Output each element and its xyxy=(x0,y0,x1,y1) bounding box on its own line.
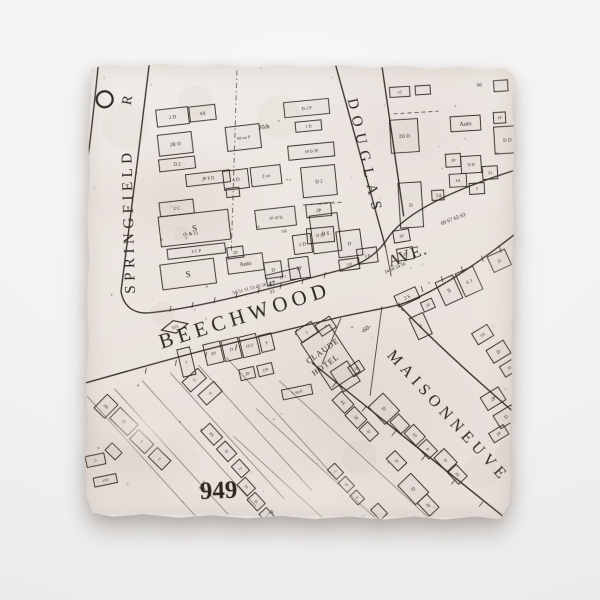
building-outline xyxy=(371,503,388,520)
building: 1 xyxy=(177,347,196,377)
map-label-dim-60: -60- xyxy=(360,323,373,335)
lot-tick xyxy=(362,407,366,412)
ink-speckle xyxy=(111,294,113,296)
ink-speckle xyxy=(202,480,204,482)
ink-speckle xyxy=(329,488,330,489)
building-label: 1 D xyxy=(299,242,307,248)
ink-speckle xyxy=(440,450,442,452)
ink-speckle xyxy=(365,405,367,407)
ink-speckle xyxy=(287,90,288,91)
stain-blotch xyxy=(150,301,174,325)
ink-speckle xyxy=(335,381,337,383)
building: D xyxy=(398,182,424,228)
building: D xyxy=(216,441,236,462)
building: P xyxy=(418,439,438,459)
ink-speckle xyxy=(350,177,352,179)
stain-blotch xyxy=(342,440,377,475)
building: 5 xyxy=(85,453,106,468)
ink-speckle xyxy=(457,148,458,149)
building: S xyxy=(160,258,217,290)
ink-speckle xyxy=(209,379,210,380)
ink-speckle xyxy=(421,263,423,265)
ink-speckle xyxy=(197,516,198,517)
building: 21P xyxy=(257,363,274,377)
ink-speckle xyxy=(320,203,323,206)
building: D 2 xyxy=(159,156,196,172)
ink-speckle xyxy=(322,339,323,340)
map-label-stray-5a-west: 5A xyxy=(281,228,288,234)
building-label: 2 on xyxy=(262,173,271,179)
ink-speckle xyxy=(179,421,181,423)
ink-speckle xyxy=(398,302,400,304)
building: D xyxy=(499,359,517,378)
ink-speckle xyxy=(194,455,196,457)
ink-speckle xyxy=(415,315,416,316)
ink-speckle xyxy=(297,158,298,159)
building xyxy=(371,503,388,520)
building xyxy=(493,80,508,92)
building: D xyxy=(247,492,265,510)
ink-speckle xyxy=(387,462,389,464)
building-label: D 2 P xyxy=(301,105,312,111)
building: 1P xyxy=(445,153,461,167)
ink-speckle xyxy=(489,440,490,441)
ink-speckle xyxy=(286,179,288,181)
building xyxy=(105,443,122,460)
building: 2D D xyxy=(389,119,419,154)
building-label: 2 D xyxy=(169,115,177,121)
building-label: x2 xyxy=(398,89,402,94)
ink-speckle xyxy=(439,146,440,147)
building-label: D 2 xyxy=(173,162,181,168)
building: 4A xyxy=(201,423,223,445)
building: D D xyxy=(461,155,482,173)
boundary-dashed-line xyxy=(231,70,237,250)
ink-speckle xyxy=(512,321,514,323)
building-outline xyxy=(493,80,508,92)
building-outline xyxy=(415,85,431,95)
building: 2P xyxy=(227,246,244,259)
building: 2 P xyxy=(356,247,378,264)
building-label: 21P xyxy=(346,262,352,267)
ink-speckle xyxy=(274,297,276,299)
ink-speckle xyxy=(246,296,247,297)
ink-speckle xyxy=(401,308,404,311)
ink-speckle xyxy=(128,446,129,447)
lot-line xyxy=(255,409,406,523)
ink-speckle xyxy=(511,270,512,271)
building: D xyxy=(486,340,511,363)
building: 4A on P xyxy=(225,124,261,152)
ink-speckle xyxy=(489,269,490,270)
building: 1P xyxy=(493,112,506,124)
map-label-block-number-949: 949 xyxy=(199,477,238,506)
ink-speckle xyxy=(339,229,341,231)
building-outline xyxy=(105,443,122,460)
building-label: 1 D xyxy=(305,123,312,129)
building: 1 on P xyxy=(281,384,312,400)
ink-speckle xyxy=(136,172,138,174)
ink-speckle xyxy=(371,337,372,338)
ink-speckle xyxy=(373,340,374,341)
ink-speckle xyxy=(259,132,260,133)
lot-tick xyxy=(392,431,396,436)
ink-speckle xyxy=(391,204,392,205)
ink-speckle xyxy=(504,388,506,390)
building: 1P 1P D xyxy=(255,206,297,229)
building: 1P xyxy=(420,298,435,312)
sanborn-map: 2 D4A2R DD 22P F D2 CSF C PS4A on P4 D2 … xyxy=(83,61,517,523)
ink-speckle xyxy=(289,179,291,181)
ink-speckle xyxy=(200,429,203,432)
building: D 2 xyxy=(301,165,338,198)
ink-speckle xyxy=(351,326,353,328)
photo-background: 2 D4A2R DD 22P F D2 CSF C PS4A on P4 D2 … xyxy=(0,0,600,600)
lot-tick xyxy=(302,278,303,284)
ink-speckle xyxy=(361,521,362,522)
building: 2S xyxy=(237,477,255,495)
building: 2P xyxy=(239,366,256,380)
ink-speckle xyxy=(268,125,270,127)
building: x2 xyxy=(389,86,410,97)
ink-speckle xyxy=(116,125,117,126)
building: 1P D 2P xyxy=(288,142,335,160)
ink-speckle xyxy=(182,501,184,503)
ink-speckle xyxy=(351,423,352,424)
building: 4 xyxy=(198,381,222,405)
building: 2 xyxy=(327,463,343,479)
ink-speckle xyxy=(199,486,202,489)
building: 2P xyxy=(480,387,506,411)
map-label-douglas: DOUGLAS xyxy=(344,97,386,218)
building: Auto xyxy=(450,115,481,132)
building: 2P xyxy=(393,229,411,243)
ink-speckle xyxy=(137,384,139,386)
building: 2R D xyxy=(157,132,193,157)
ink-speckle xyxy=(205,318,206,319)
ink-speckle xyxy=(251,471,253,473)
ink-speckle xyxy=(410,267,412,269)
ink-speckle xyxy=(504,431,505,432)
ink-speckle xyxy=(287,264,289,266)
ink-speckle xyxy=(464,138,466,140)
ink-speckle xyxy=(126,482,128,484)
ink-speckle xyxy=(150,84,152,86)
ink-speckle xyxy=(93,188,94,189)
ink-speckle xyxy=(496,152,498,154)
building: P xyxy=(258,333,275,353)
ink-speckle xyxy=(479,432,481,434)
building-label: 2D D xyxy=(399,134,411,140)
lot-tick xyxy=(422,455,426,460)
building: 5A xyxy=(472,324,494,344)
stain-blotch xyxy=(257,95,301,139)
ink-speckle xyxy=(299,335,300,336)
ink-speckle xyxy=(206,285,208,287)
map-label-lot-row-west: 50 51 51 53 45 56 xyxy=(232,283,268,297)
building: 2 S xyxy=(394,287,420,307)
lot-tick xyxy=(421,286,423,292)
building: 21P xyxy=(339,258,360,272)
building-label: 4 D xyxy=(232,178,240,184)
ink-speckle xyxy=(160,238,163,241)
building: 4A xyxy=(449,173,467,187)
ink-speckle xyxy=(152,299,153,300)
ink-speckle xyxy=(277,409,278,410)
building-label: D xyxy=(409,204,413,209)
stain-blotch xyxy=(178,85,213,120)
ink-speckle xyxy=(280,413,283,416)
building: 2 xyxy=(231,459,249,477)
ink-speckle xyxy=(332,201,334,203)
ink-speckle xyxy=(378,197,380,199)
ink-speckle xyxy=(506,247,507,248)
ink-speckle xyxy=(384,105,386,107)
ink-speckle xyxy=(263,491,264,492)
map-coaster-tile: 2 D4A2R DD 22P F D2 CSF C PS4A on P4 D2 … xyxy=(83,61,517,523)
ink-speckle xyxy=(363,515,364,516)
building-label: D S xyxy=(322,231,330,237)
ink-speckle xyxy=(103,77,105,79)
building: 1VF xyxy=(93,474,117,487)
ink-speckle xyxy=(183,167,184,168)
ink-speckle xyxy=(323,368,324,369)
building-label: 21 xyxy=(488,170,492,175)
building: 2F xyxy=(386,451,406,472)
ink-speckle xyxy=(170,206,172,208)
building-label: 2 xyxy=(476,186,478,191)
building-label: D D xyxy=(467,162,474,167)
building: 2 xyxy=(469,183,485,195)
lot-tick xyxy=(175,360,176,366)
lot-tick xyxy=(479,502,483,507)
ink-speckle xyxy=(326,377,327,378)
ink-speckle xyxy=(97,447,99,449)
building: 4 D xyxy=(222,169,249,191)
building: P xyxy=(130,430,154,454)
stain-blotch xyxy=(173,226,190,243)
ink-speckle xyxy=(433,506,435,508)
building-label: 4A xyxy=(455,178,460,183)
building: D xyxy=(110,407,138,435)
ink-speckle xyxy=(257,226,259,228)
lot-tick xyxy=(145,368,146,374)
building-label: 2P xyxy=(316,209,322,215)
building-label: Auto xyxy=(459,121,471,128)
map-label-lot-60: 60 xyxy=(477,84,483,89)
ink-speckle xyxy=(230,206,231,207)
building: D D xyxy=(494,126,517,155)
ink-speckle xyxy=(149,168,150,169)
stain-blotch xyxy=(464,455,498,489)
ink-speckle xyxy=(273,418,275,420)
ink-speckle xyxy=(386,67,387,68)
ink-speckle xyxy=(441,168,442,169)
map-label-lot-row-east: 69 67 65 63 xyxy=(440,212,467,227)
ink-speckle xyxy=(194,309,196,311)
building-label: D D xyxy=(503,138,512,144)
ink-speckle xyxy=(260,67,262,69)
ink-speckle xyxy=(185,237,187,239)
map-label-stray-5a-east: 5A xyxy=(436,194,443,199)
building-label: D 2 xyxy=(315,180,323,186)
stain-blotch xyxy=(102,102,149,149)
coaster-tile-wrapper: 2 D4A2R DD 22P F D2 CSF C PS4A on P4 D2 … xyxy=(83,61,517,523)
ink-speckle xyxy=(431,242,432,243)
circle-symbol xyxy=(97,91,113,107)
building: 1P xyxy=(338,476,354,492)
ink-speckle xyxy=(278,120,280,122)
ink-speckle xyxy=(454,105,456,107)
ink-speckle xyxy=(462,438,464,440)
building: D xyxy=(493,405,517,429)
ink-speckle xyxy=(317,463,318,464)
building: 8 xyxy=(350,490,365,505)
map-label-ave: AVE. xyxy=(386,241,430,271)
building xyxy=(415,85,431,95)
ink-speckle xyxy=(271,83,272,84)
street-line-hotel-block-east xyxy=(370,307,382,396)
building: 2 on xyxy=(250,165,282,187)
building-label: 2 C xyxy=(173,206,181,212)
building: 2 xyxy=(148,447,171,470)
building: 2D xyxy=(203,341,224,365)
building: 2P xyxy=(489,425,509,443)
lot-tick xyxy=(192,302,193,308)
ink-speckle xyxy=(428,282,430,284)
building: 21 xyxy=(482,166,498,180)
ink-speckle xyxy=(332,77,333,78)
ink-speckle xyxy=(492,325,494,327)
boundary-dashed-line xyxy=(394,111,439,114)
